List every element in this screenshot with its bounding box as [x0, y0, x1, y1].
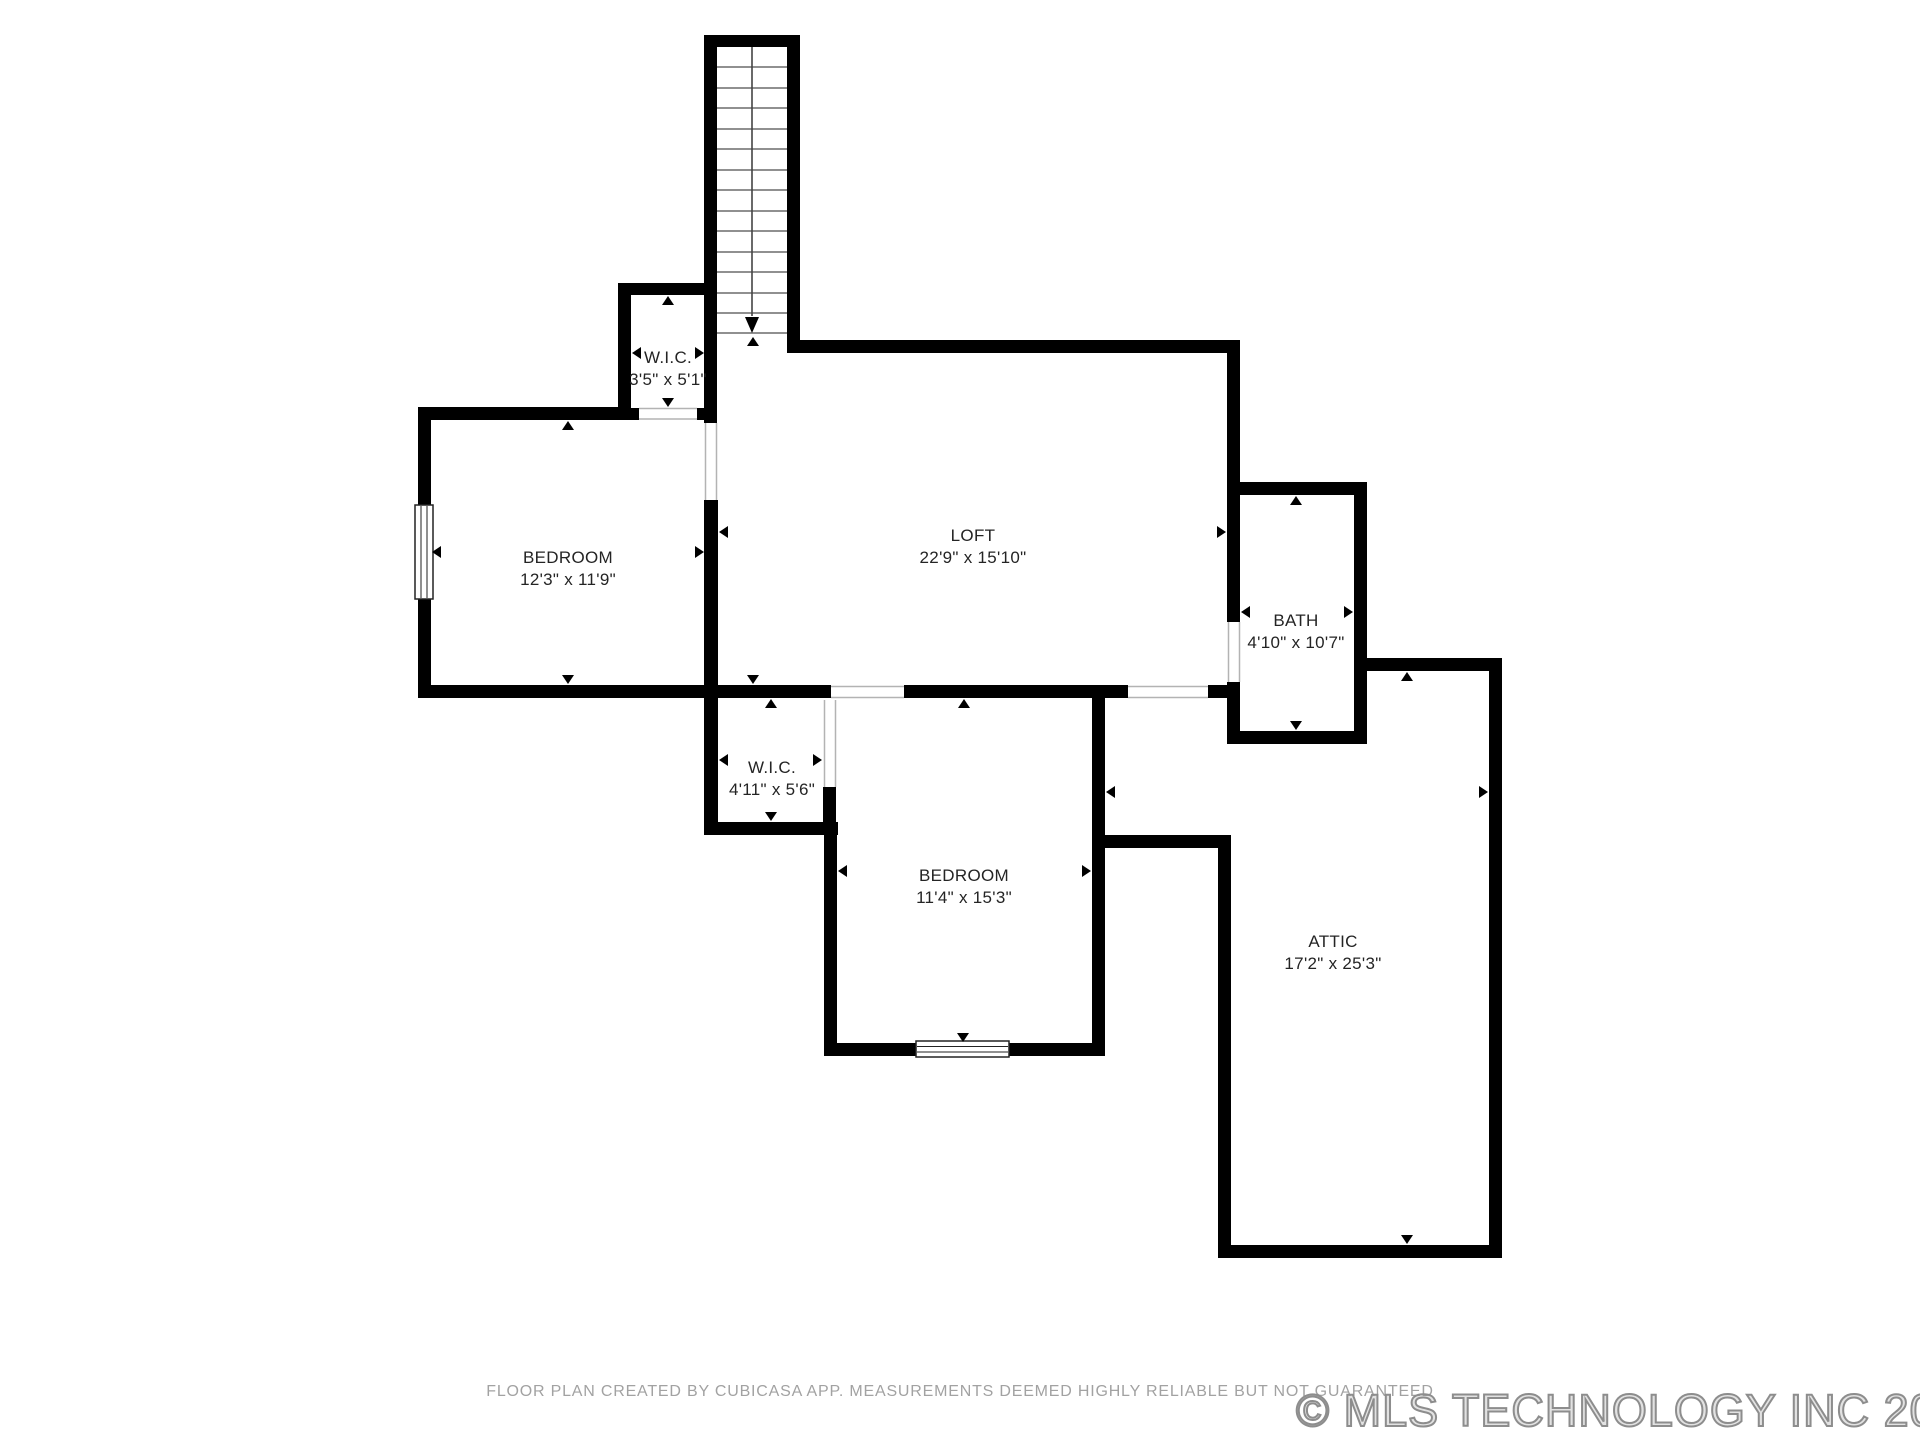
wall-wic2-bottom	[704, 822, 838, 835]
arrow-attic-up	[1401, 672, 1413, 681]
door-openings	[639, 409, 1240, 788]
arrow-bedroom1-right	[695, 546, 704, 558]
arrow-bedroom2-left	[838, 865, 847, 877]
wall-attic-left	[1218, 835, 1231, 1258]
wall-stair-right	[787, 35, 800, 353]
wall-stair-top	[704, 35, 800, 47]
arrow-wic2-up	[765, 699, 777, 708]
dimension-arrows	[432, 296, 1488, 1244]
wall-bedroom1-bottom	[418, 685, 719, 698]
floor-plan-drawing	[0, 0, 1920, 1440]
arrow-loft-down	[747, 675, 759, 684]
wall-bedroom1-right-lower	[704, 500, 718, 835]
wall-attic-right	[1489, 658, 1502, 1258]
wall-loft-top	[787, 340, 1240, 353]
mls-watermark: © MLS TECHNOLOGY INC 2025	[1296, 1385, 1920, 1437]
staircase	[717, 47, 787, 333]
floor-plan-canvas: W.I.C. 3'5" x 5'1" BEDROOM 12'3" x 11'9"…	[0, 0, 1920, 1440]
wall-wic1-bottom-left	[631, 408, 639, 420]
arrow-loft-up	[747, 337, 759, 346]
room-name: BEDROOM	[520, 547, 616, 569]
room-label-wic-upper: W.I.C. 3'5" x 5'1"	[629, 347, 707, 391]
room-dimensions: 17'2" x 25'3"	[1284, 953, 1381, 975]
wall-wic1-top	[618, 283, 717, 295]
room-dimensions: 12'3" x 11'9"	[520, 569, 616, 591]
arrow-wic2-down	[765, 812, 777, 821]
wall-bedroom2-left	[824, 835, 837, 1056]
room-label-bath: BATH 4'10" x 10'7"	[1247, 610, 1344, 654]
wall-bath-top	[1227, 482, 1367, 495]
arrow-bath-right	[1344, 606, 1353, 618]
wall-south-segment1	[718, 685, 831, 698]
room-dimensions: 11'4" x 15'3"	[916, 887, 1012, 909]
room-name: BATH	[1247, 610, 1344, 632]
arrow-loft-right	[1217, 526, 1226, 538]
wall-hall-bottom	[1103, 835, 1231, 848]
wall-bath-right	[1354, 482, 1367, 744]
room-dimensions: 3'5" x 5'1"	[629, 369, 707, 391]
room-label-loft: LOFT 22'9" x 15'10"	[920, 525, 1027, 569]
arrow-attic-down	[1401, 1235, 1413, 1244]
arrow-bath-down	[1290, 721, 1302, 730]
arrow-bath-up	[1290, 496, 1302, 505]
room-name: W.I.C.	[729, 757, 815, 779]
wall-bedroom1-top	[418, 407, 631, 420]
arrow-wic1-up	[662, 296, 674, 305]
arrow-bedroom1-down	[562, 675, 574, 684]
stair-direction-arrow	[745, 317, 759, 333]
arrow-loft-left	[719, 526, 728, 538]
room-label-wic-lower: W.I.C. 4'11" x 5'6"	[729, 757, 815, 801]
arrow-attic-left	[1106, 786, 1115, 798]
arrow-bedroom2-right	[1082, 865, 1091, 877]
footer-disclaimer: FLOOR PLAN CREATED BY CUBICASA APP. MEAS…	[486, 1383, 1433, 1401]
wall-wic1-bottom-right	[697, 408, 705, 420]
wall-attic-bottom	[1218, 1245, 1502, 1258]
wall-bedroom2-right	[1092, 698, 1105, 1056]
room-name: W.I.C.	[629, 347, 707, 369]
arrow-bedroom2-up	[958, 699, 970, 708]
wall-bath-left-upper	[1227, 482, 1240, 622]
arrow-bedroom1-up	[562, 421, 574, 430]
wall-south-segment2	[904, 685, 1128, 698]
room-dimensions: 4'10" x 10'7"	[1247, 632, 1344, 654]
room-dimensions: 22'9" x 15'10"	[920, 547, 1027, 569]
room-name: LOFT	[920, 525, 1027, 547]
wall-attic-top	[1354, 658, 1502, 671]
window-bedroom1-left	[415, 505, 433, 599]
room-name: BEDROOM	[916, 865, 1012, 887]
room-label-attic: ATTIC 17'2" x 25'3"	[1284, 931, 1381, 975]
wall-loft-right	[1227, 340, 1240, 495]
arrow-wic2-left	[719, 754, 728, 766]
arrow-wic1-down	[662, 398, 674, 407]
room-dimensions: 4'11" x 5'6"	[729, 779, 815, 801]
room-name: ATTIC	[1284, 931, 1381, 953]
arrow-attic-right	[1479, 786, 1488, 798]
wall-bath-bottom	[1227, 731, 1367, 744]
room-label-bedroom-left: BEDROOM 12'3" x 11'9"	[520, 547, 616, 591]
window-bedroom2-bottom	[916, 1041, 1009, 1057]
room-label-bedroom-lower: BEDROOM 11'4" x 15'3"	[916, 865, 1012, 909]
wall-south-segment3	[1208, 685, 1240, 698]
